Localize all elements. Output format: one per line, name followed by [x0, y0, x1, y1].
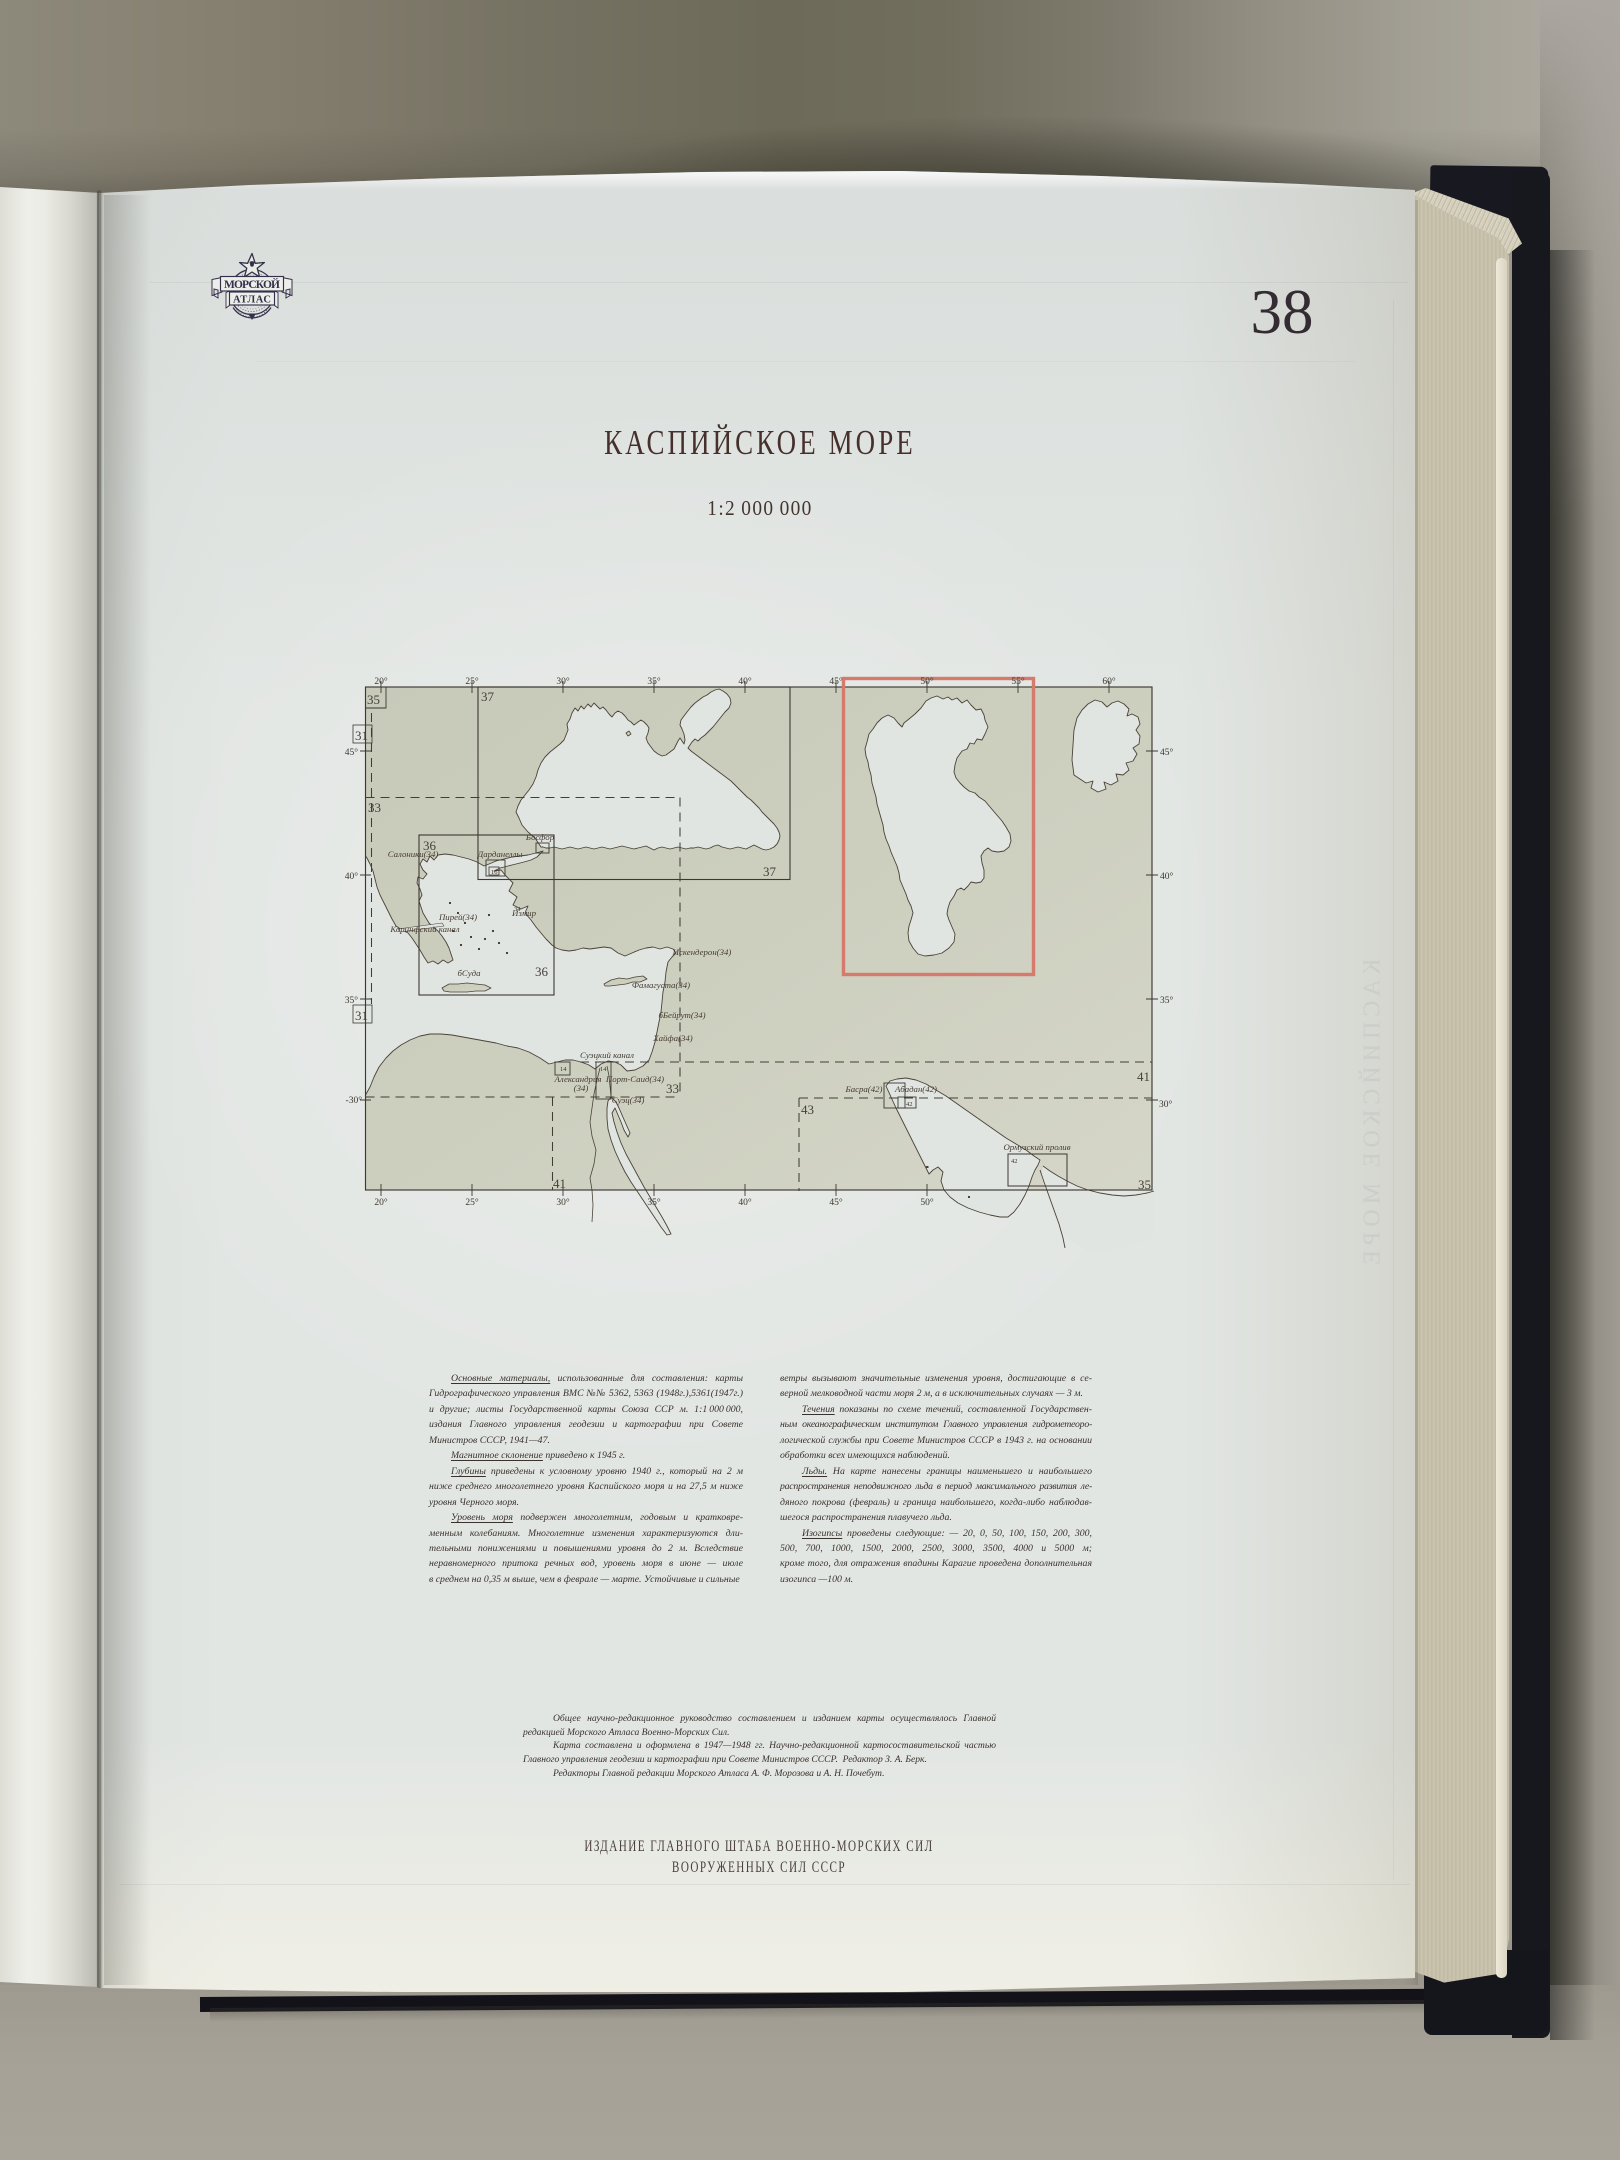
svg-text:30°: 30°: [1159, 1099, 1173, 1110]
svg-text:20°: 20°: [374, 1197, 388, 1208]
svg-text:(34): (34): [574, 1083, 589, 1093]
svg-text:33: 33: [368, 800, 381, 815]
svg-text:16: 16: [491, 869, 498, 876]
svg-text:50°: 50°: [920, 1197, 934, 1208]
svg-text:35°: 35°: [345, 995, 359, 1006]
svg-text:Хайфа(34): Хайфа(34): [652, 1033, 693, 1043]
svg-text:бСуда: бСуда: [457, 968, 481, 978]
svg-text:25°: 25°: [465, 676, 479, 687]
svg-text:Босфор: Босфор: [525, 832, 555, 842]
svg-text:Суэцкий канал: Суэцкий канал: [580, 1050, 634, 1060]
svg-text:34: 34: [514, 906, 521, 913]
svg-text:42: 42: [906, 1101, 913, 1108]
svg-text:37: 37: [481, 689, 495, 704]
svg-text:30°: 30°: [556, 1197, 570, 1208]
svg-text:14: 14: [560, 1066, 567, 1073]
svg-text:Коринфский канал: Коринфский канал: [389, 924, 459, 934]
svg-text:Басра(42): Басра(42): [845, 1084, 883, 1094]
svg-text:бБейрут(34): бБейрут(34): [658, 1010, 705, 1020]
svg-text:АТЛАС: АТЛАС: [233, 295, 271, 306]
svg-text:МОРСКОЙ: МОРСКОЙ: [224, 277, 280, 291]
svg-text:36: 36: [535, 964, 549, 979]
svg-text:Абадан(42): Абадан(42): [894, 1084, 937, 1094]
svg-text:55°: 55°: [1011, 676, 1025, 687]
svg-text:Порт-Саид(34): Порт-Саид(34): [605, 1074, 664, 1084]
svg-text:40°: 40°: [738, 1197, 752, 1208]
svg-text:25°: 25°: [465, 1197, 479, 1208]
svg-text:37: 37: [763, 864, 777, 879]
svg-text:42: 42: [1011, 1158, 1018, 1165]
svg-text:20°: 20°: [374, 676, 388, 687]
svg-text:Суэц(34): Суэц(34): [612, 1095, 645, 1105]
svg-text:45°: 45°: [345, 747, 359, 758]
svg-text:31: 31: [355, 728, 368, 743]
svg-text:Искендерон(34): Искендерон(34): [672, 947, 732, 957]
svg-text:35°: 35°: [1160, 995, 1174, 1006]
svg-text:35: 35: [1138, 1177, 1151, 1192]
svg-text:35: 35: [367, 692, 380, 707]
svg-text:45°: 45°: [829, 676, 843, 687]
svg-text:Ормузский пролив: Ормузский пролив: [1003, 1142, 1070, 1152]
svg-text:40°: 40°: [345, 871, 359, 882]
svg-text:35°: 35°: [647, 1197, 661, 1208]
svg-text:60°: 60°: [1102, 676, 1116, 687]
svg-text:41: 41: [1137, 1069, 1150, 1084]
svg-text:50°: 50°: [920, 676, 934, 687]
svg-text:Салоники(34): Салоники(34): [388, 849, 439, 859]
svg-text:40°: 40°: [1160, 871, 1174, 882]
svg-text:35°: 35°: [647, 676, 661, 687]
svg-text:14: 14: [600, 1066, 607, 1073]
svg-text:33: 33: [666, 1081, 679, 1096]
svg-text:45°: 45°: [1160, 747, 1174, 758]
svg-text:31: 31: [355, 1008, 368, 1023]
svg-text:43: 43: [801, 1102, 814, 1117]
svg-text:Дарданеллы: Дарданеллы: [477, 849, 523, 859]
svg-text:45°: 45°: [829, 1197, 843, 1208]
svg-text:Фамагуста(34): Фамагуста(34): [632, 980, 690, 990]
svg-text:Пирей(34): Пирей(34): [438, 912, 477, 922]
svg-text:-30°: -30°: [346, 1095, 363, 1106]
svg-text:41: 41: [553, 1176, 566, 1191]
svg-text:40°: 40°: [738, 676, 752, 687]
svg-text:30°: 30°: [556, 676, 570, 687]
